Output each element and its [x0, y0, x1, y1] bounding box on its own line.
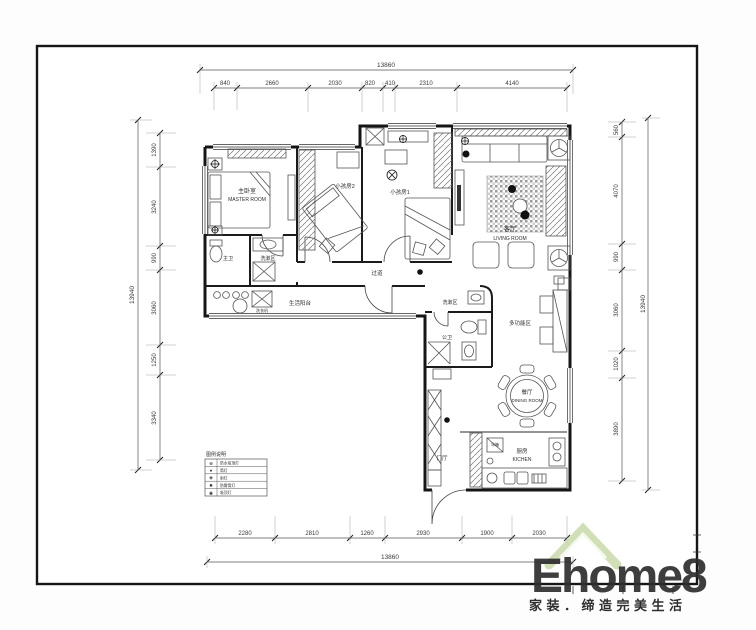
- floor-plan-sheet: 13860 840 2660 2030 820 410 2310 4140 22…: [0, 0, 756, 630]
- room-label-dining-cn: 餐厅: [521, 388, 533, 396]
- dim-top-seg-6: 4140: [505, 81, 519, 87]
- ceiling-light-icon: [521, 211, 530, 220]
- watermark-brand: Ehome8: [531, 550, 707, 603]
- room-label-wash2: 洗漱区: [442, 299, 457, 306]
- dim-left-seg-0: 1390: [152, 143, 158, 157]
- legend-symbol-0: ⊕: [209, 461, 213, 466]
- living-curtain: [455, 129, 567, 136]
- room-label-living-en: LIVING ROOM: [493, 236, 526, 242]
- dim-left-seg-4: 1250: [152, 353, 158, 367]
- dim-top-seg-5: 2310: [419, 81, 433, 87]
- dim-right-seg-2: 990: [614, 251, 620, 262]
- furniture-label-washer: 洗衣机: [256, 307, 268, 313]
- legend-symbol-3: ✸: [209, 483, 213, 488]
- room-label-foyer: 门厅: [436, 454, 448, 462]
- dim-right-overall: 13940: [640, 295, 647, 313]
- dim-top-seg-2: 2030: [328, 81, 342, 87]
- dim-right-seg-5: 3890: [614, 422, 620, 436]
- dim-top-seg-0: 840: [220, 81, 231, 87]
- dim-left-seg-2: 990: [152, 252, 158, 263]
- legend-label-3: 防雾筒灯: [220, 483, 235, 488]
- dim-right-seg-4: 1020: [614, 357, 620, 371]
- dim-bottom-seg-3: 2930: [416, 531, 430, 537]
- room-label-multi: 多功能区: [509, 319, 532, 327]
- room-label-kitchen-en: KICHEN: [513, 457, 532, 463]
- dim-bottom-seg-2: 1260: [360, 531, 374, 537]
- legend-label-4: 吸顶灯: [220, 490, 232, 495]
- room-label-living-cn: 客厅: [504, 225, 516, 233]
- dim-right-seg-1: 4070: [614, 184, 620, 198]
- room-label-master-en: MASTER ROOM: [228, 197, 266, 203]
- room-label-master-bath: 主卫: [223, 255, 233, 262]
- legend-label-2: 射灯: [220, 475, 228, 480]
- dim-bottom-seg-0: 2280: [238, 531, 252, 537]
- room-label-balcony: 生活阳台: [289, 299, 312, 307]
- dim-left-seg-1: 3240: [152, 200, 158, 214]
- dim-left-seg-5: 3340: [152, 411, 158, 425]
- room-label-master-cn: 主卧室: [238, 187, 256, 195]
- kids1-wardrobe: [434, 133, 452, 188]
- legend-title: 图例说明: [206, 451, 226, 458]
- room-label-dining-en: DINING ROOM: [512, 398, 543, 403]
- watermark-slogan: 家装．缔造完美生活: [529, 598, 687, 613]
- legend-symbol-4: ◉: [209, 490, 213, 495]
- dim-top-seg-1: 2660: [265, 81, 279, 87]
- tv-screen: [457, 185, 461, 211]
- room-label-kitchen-cn: 厨房: [516, 447, 528, 455]
- dim-bottom-seg-4: 1900: [480, 531, 494, 537]
- floor-plan-svg: 13860 840 2660 2030 820 410 2310 4140 22…: [0, 0, 756, 630]
- room-label-corridor: 过道: [371, 269, 383, 277]
- dim-top-seg-3: 820: [365, 81, 376, 87]
- dim-left-seg-3: 3060: [152, 301, 158, 315]
- legend-label-0: 防水吸顶灯: [220, 461, 239, 466]
- room-label-public-bath: 公卫: [442, 335, 452, 341]
- dim-right-seg-0: 560: [614, 124, 620, 135]
- room-label-wash1: 洗漱区: [260, 255, 275, 262]
- room-label-kids2: 小孩房2: [335, 182, 355, 190]
- sofa-side: [546, 166, 566, 236]
- dim-bottom-overall: 13860: [381, 554, 399, 561]
- room-label-kids1: 小孩房1: [390, 188, 410, 196]
- dim-left-overall: 13940: [129, 286, 136, 304]
- ceiling-light-icon: [508, 185, 516, 193]
- legend-symbol-1: ●: [210, 468, 213, 473]
- dim-bottom-seg-1: 2810: [305, 531, 319, 537]
- legend-symbol-2: ✚: [209, 476, 213, 481]
- furniture-label-fridge: 冰箱: [491, 441, 499, 447]
- dim-right-seg-3: 3060: [614, 303, 620, 317]
- dim-top-overall: 13860: [377, 62, 395, 69]
- dim-top-seg-4: 410: [385, 81, 396, 87]
- dim-bottom-seg-5: 2030: [532, 531, 546, 537]
- legend-label-1: 筒灯: [220, 468, 228, 473]
- master-wardrobe: [228, 149, 286, 158]
